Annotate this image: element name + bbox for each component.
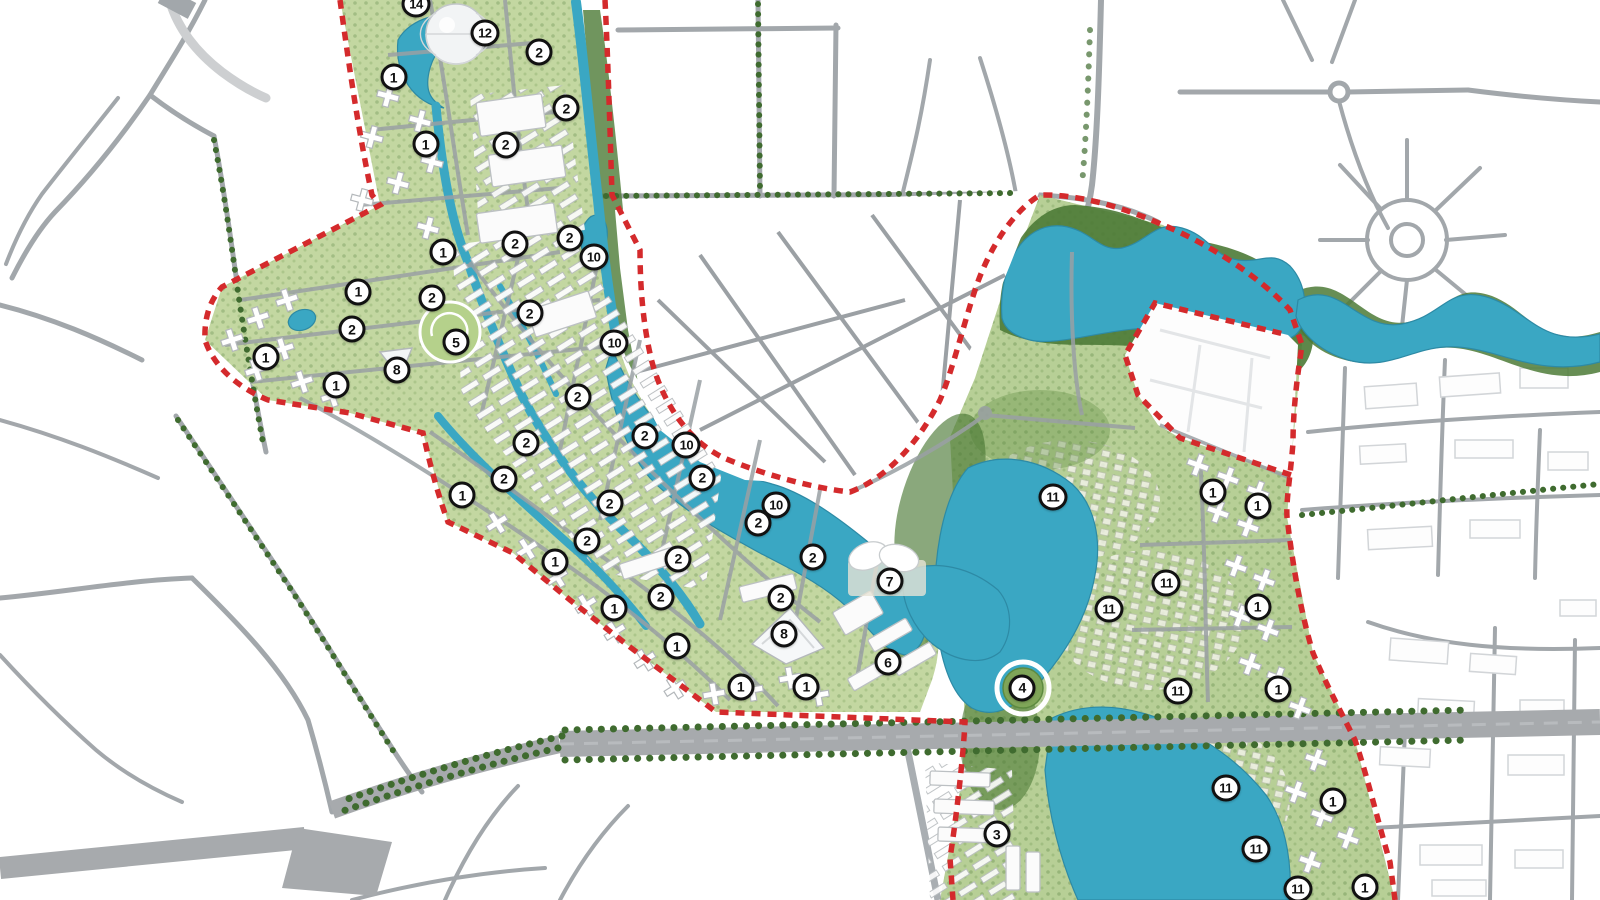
zone-marker-2-30[interactable]: 2 xyxy=(574,527,601,554)
zone-marker-2-4[interactable]: 2 xyxy=(553,95,580,122)
zone-marker-1-45[interactable]: 1 xyxy=(1244,492,1271,519)
zone-marker-layer: 1412212121221012225101812210222121022212… xyxy=(0,0,1600,900)
zone-marker-2-29[interactable]: 2 xyxy=(745,509,772,536)
zone-marker-2-21[interactable]: 2 xyxy=(631,422,658,449)
zone-marker-1-19[interactable]: 1 xyxy=(323,372,350,399)
zone-marker-14-0[interactable]: 14 xyxy=(402,0,431,17)
zone-marker-2-27[interactable]: 2 xyxy=(596,490,623,517)
zone-marker-1-42[interactable]: 1 xyxy=(793,673,820,700)
zone-marker-8-18[interactable]: 8 xyxy=(383,356,410,383)
zone-marker-2-14[interactable]: 2 xyxy=(339,316,366,343)
zone-marker-11-55[interactable]: 11 xyxy=(1242,835,1271,862)
zone-marker-2-2[interactable]: 2 xyxy=(526,39,553,66)
zone-marker-7-34[interactable]: 7 xyxy=(876,568,903,595)
zone-marker-1-26[interactable]: 1 xyxy=(449,482,476,509)
zone-marker-2-9[interactable]: 2 xyxy=(556,224,583,251)
zone-marker-8-38[interactable]: 8 xyxy=(771,620,798,647)
zone-marker-4-49[interactable]: 4 xyxy=(1009,674,1036,701)
zone-marker-5-15[interactable]: 5 xyxy=(443,329,470,356)
zone-marker-10-16[interactable]: 10 xyxy=(600,329,629,356)
zone-marker-1-7[interactable]: 1 xyxy=(430,239,457,266)
zone-marker-2-33[interactable]: 2 xyxy=(665,545,692,572)
zone-marker-11-46[interactable]: 11 xyxy=(1152,570,1181,597)
zone-marker-2-8[interactable]: 2 xyxy=(502,230,529,257)
zone-marker-1-5[interactable]: 1 xyxy=(412,131,439,158)
zone-marker-2-36[interactable]: 2 xyxy=(767,584,794,611)
zone-marker-1-44[interactable]: 1 xyxy=(1199,479,1226,506)
zone-marker-1-41[interactable]: 1 xyxy=(727,673,754,700)
zone-marker-2-24[interactable]: 2 xyxy=(689,464,716,491)
zone-marker-1-48[interactable]: 1 xyxy=(1244,593,1271,620)
zone-marker-2-25[interactable]: 2 xyxy=(491,465,518,492)
zone-marker-11-47[interactable]: 11 xyxy=(1094,596,1123,623)
zone-marker-1-39[interactable]: 1 xyxy=(663,633,690,660)
zone-marker-1-3[interactable]: 1 xyxy=(380,64,407,91)
zone-marker-2-35[interactable]: 2 xyxy=(647,583,674,610)
zone-marker-11-43[interactable]: 11 xyxy=(1038,483,1067,510)
zone-marker-2-20[interactable]: 2 xyxy=(564,383,591,410)
zone-marker-3-54[interactable]: 3 xyxy=(983,821,1010,848)
zone-marker-1-17[interactable]: 1 xyxy=(252,344,279,371)
zone-marker-1-53[interactable]: 1 xyxy=(1319,788,1346,815)
zone-marker-11-50[interactable]: 11 xyxy=(1163,678,1192,705)
zone-marker-6-40[interactable]: 6 xyxy=(875,649,902,676)
zone-marker-2-12[interactable]: 2 xyxy=(419,284,446,311)
zone-marker-2-13[interactable]: 2 xyxy=(516,300,543,327)
zone-marker-1-57[interactable]: 1 xyxy=(1351,874,1378,900)
zone-marker-1-51[interactable]: 1 xyxy=(1265,676,1292,703)
zone-marker-1-11[interactable]: 1 xyxy=(345,278,372,305)
zone-marker-2-23[interactable]: 2 xyxy=(513,429,540,456)
zone-marker-12-1[interactable]: 12 xyxy=(470,20,499,47)
zone-marker-1-37[interactable]: 1 xyxy=(601,595,628,622)
zone-marker-11-52[interactable]: 11 xyxy=(1211,775,1240,802)
zone-marker-11-56[interactable]: 11 xyxy=(1283,876,1312,900)
map-canvas: 1412212121221012225101812210222121022212… xyxy=(0,0,1600,900)
zone-marker-10-10[interactable]: 10 xyxy=(579,244,608,271)
zone-marker-2-6[interactable]: 2 xyxy=(492,131,519,158)
zone-marker-2-31[interactable]: 2 xyxy=(799,544,826,571)
zone-marker-10-22[interactable]: 10 xyxy=(672,431,701,458)
zone-marker-1-32[interactable]: 1 xyxy=(542,548,569,575)
